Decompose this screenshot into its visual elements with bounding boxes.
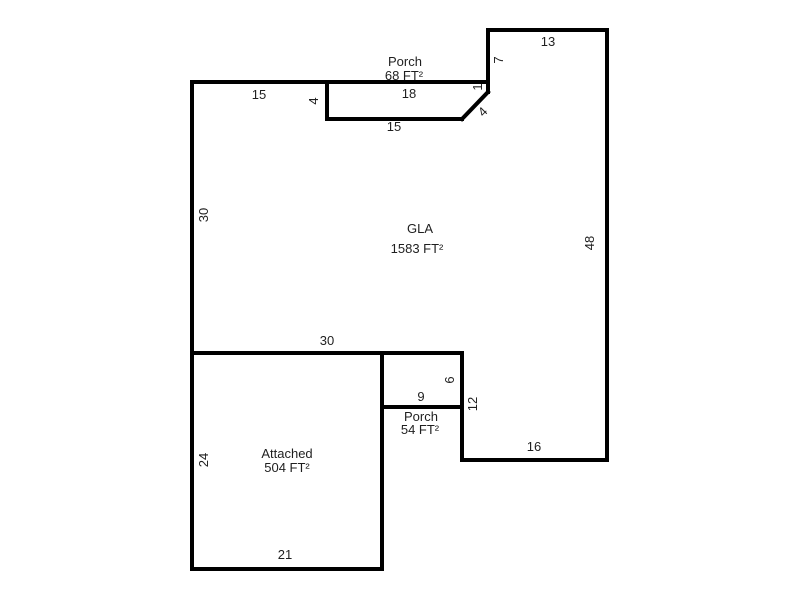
dimension-label: 15 [252,88,266,102]
floorplan-canvas [0,0,800,600]
porch-middle-area-label: 54 FT² [401,423,439,437]
dimension-label: 6 [443,376,457,383]
dimension-label: 21 [278,548,292,562]
gla-name-label: GLA [407,222,433,236]
dimension-label: 18 [402,87,416,101]
floorplan-sketch-page: 1541815147134830306912162421Porch68 FT²G… [0,0,800,600]
attached-area-label: 504 FT² [264,461,310,475]
dimension-label: 9 [417,390,424,404]
dimension-label: 12 [466,397,480,411]
dimension-label: 30 [320,334,334,348]
dimension-label: 4 [307,97,321,104]
dimension-label: 13 [541,35,555,49]
dimension-label: 15 [387,120,401,134]
porch-top-area-label: 68 FT² [385,69,423,83]
dimension-label: 1 [471,83,485,90]
dimension-label: 24 [197,453,211,467]
gla-area-label: 1583 FT² [391,242,444,256]
porch-top-name-label: Porch [388,55,422,69]
dimension-label: 7 [492,56,506,63]
dimension-label: 30 [197,208,211,222]
dimension-label: 16 [527,440,541,454]
attached-name-label: Attached [261,447,312,461]
dimension-label: 48 [583,236,597,250]
